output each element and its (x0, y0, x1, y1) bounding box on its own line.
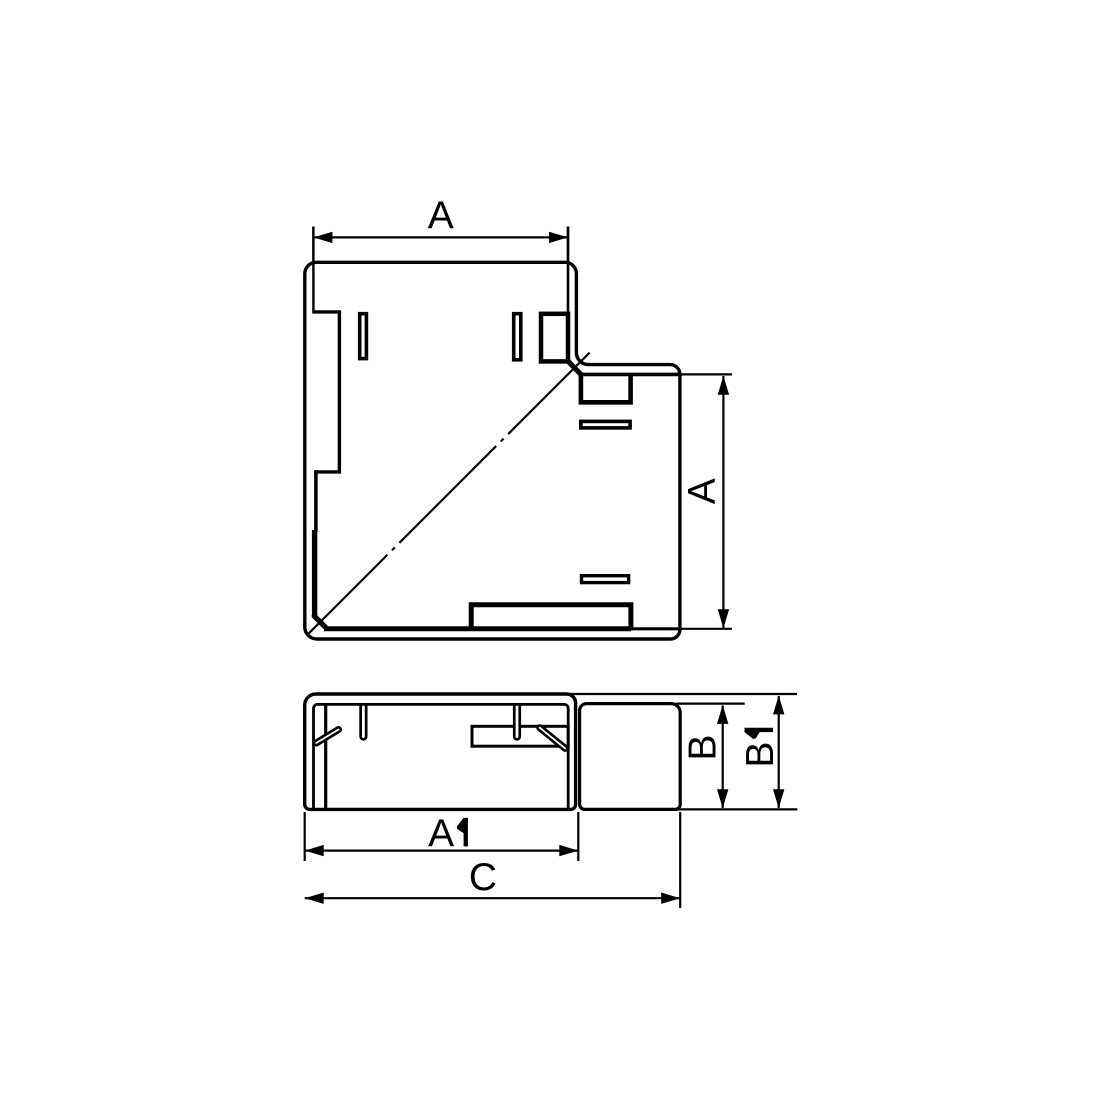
svg-text:B: B (739, 742, 782, 768)
svg-text:A: A (428, 195, 454, 238)
svg-text:A: A (428, 812, 454, 855)
svg-text:A: A (681, 478, 724, 504)
svg-text:C: C (469, 856, 497, 899)
svg-text:B: B (682, 735, 725, 761)
